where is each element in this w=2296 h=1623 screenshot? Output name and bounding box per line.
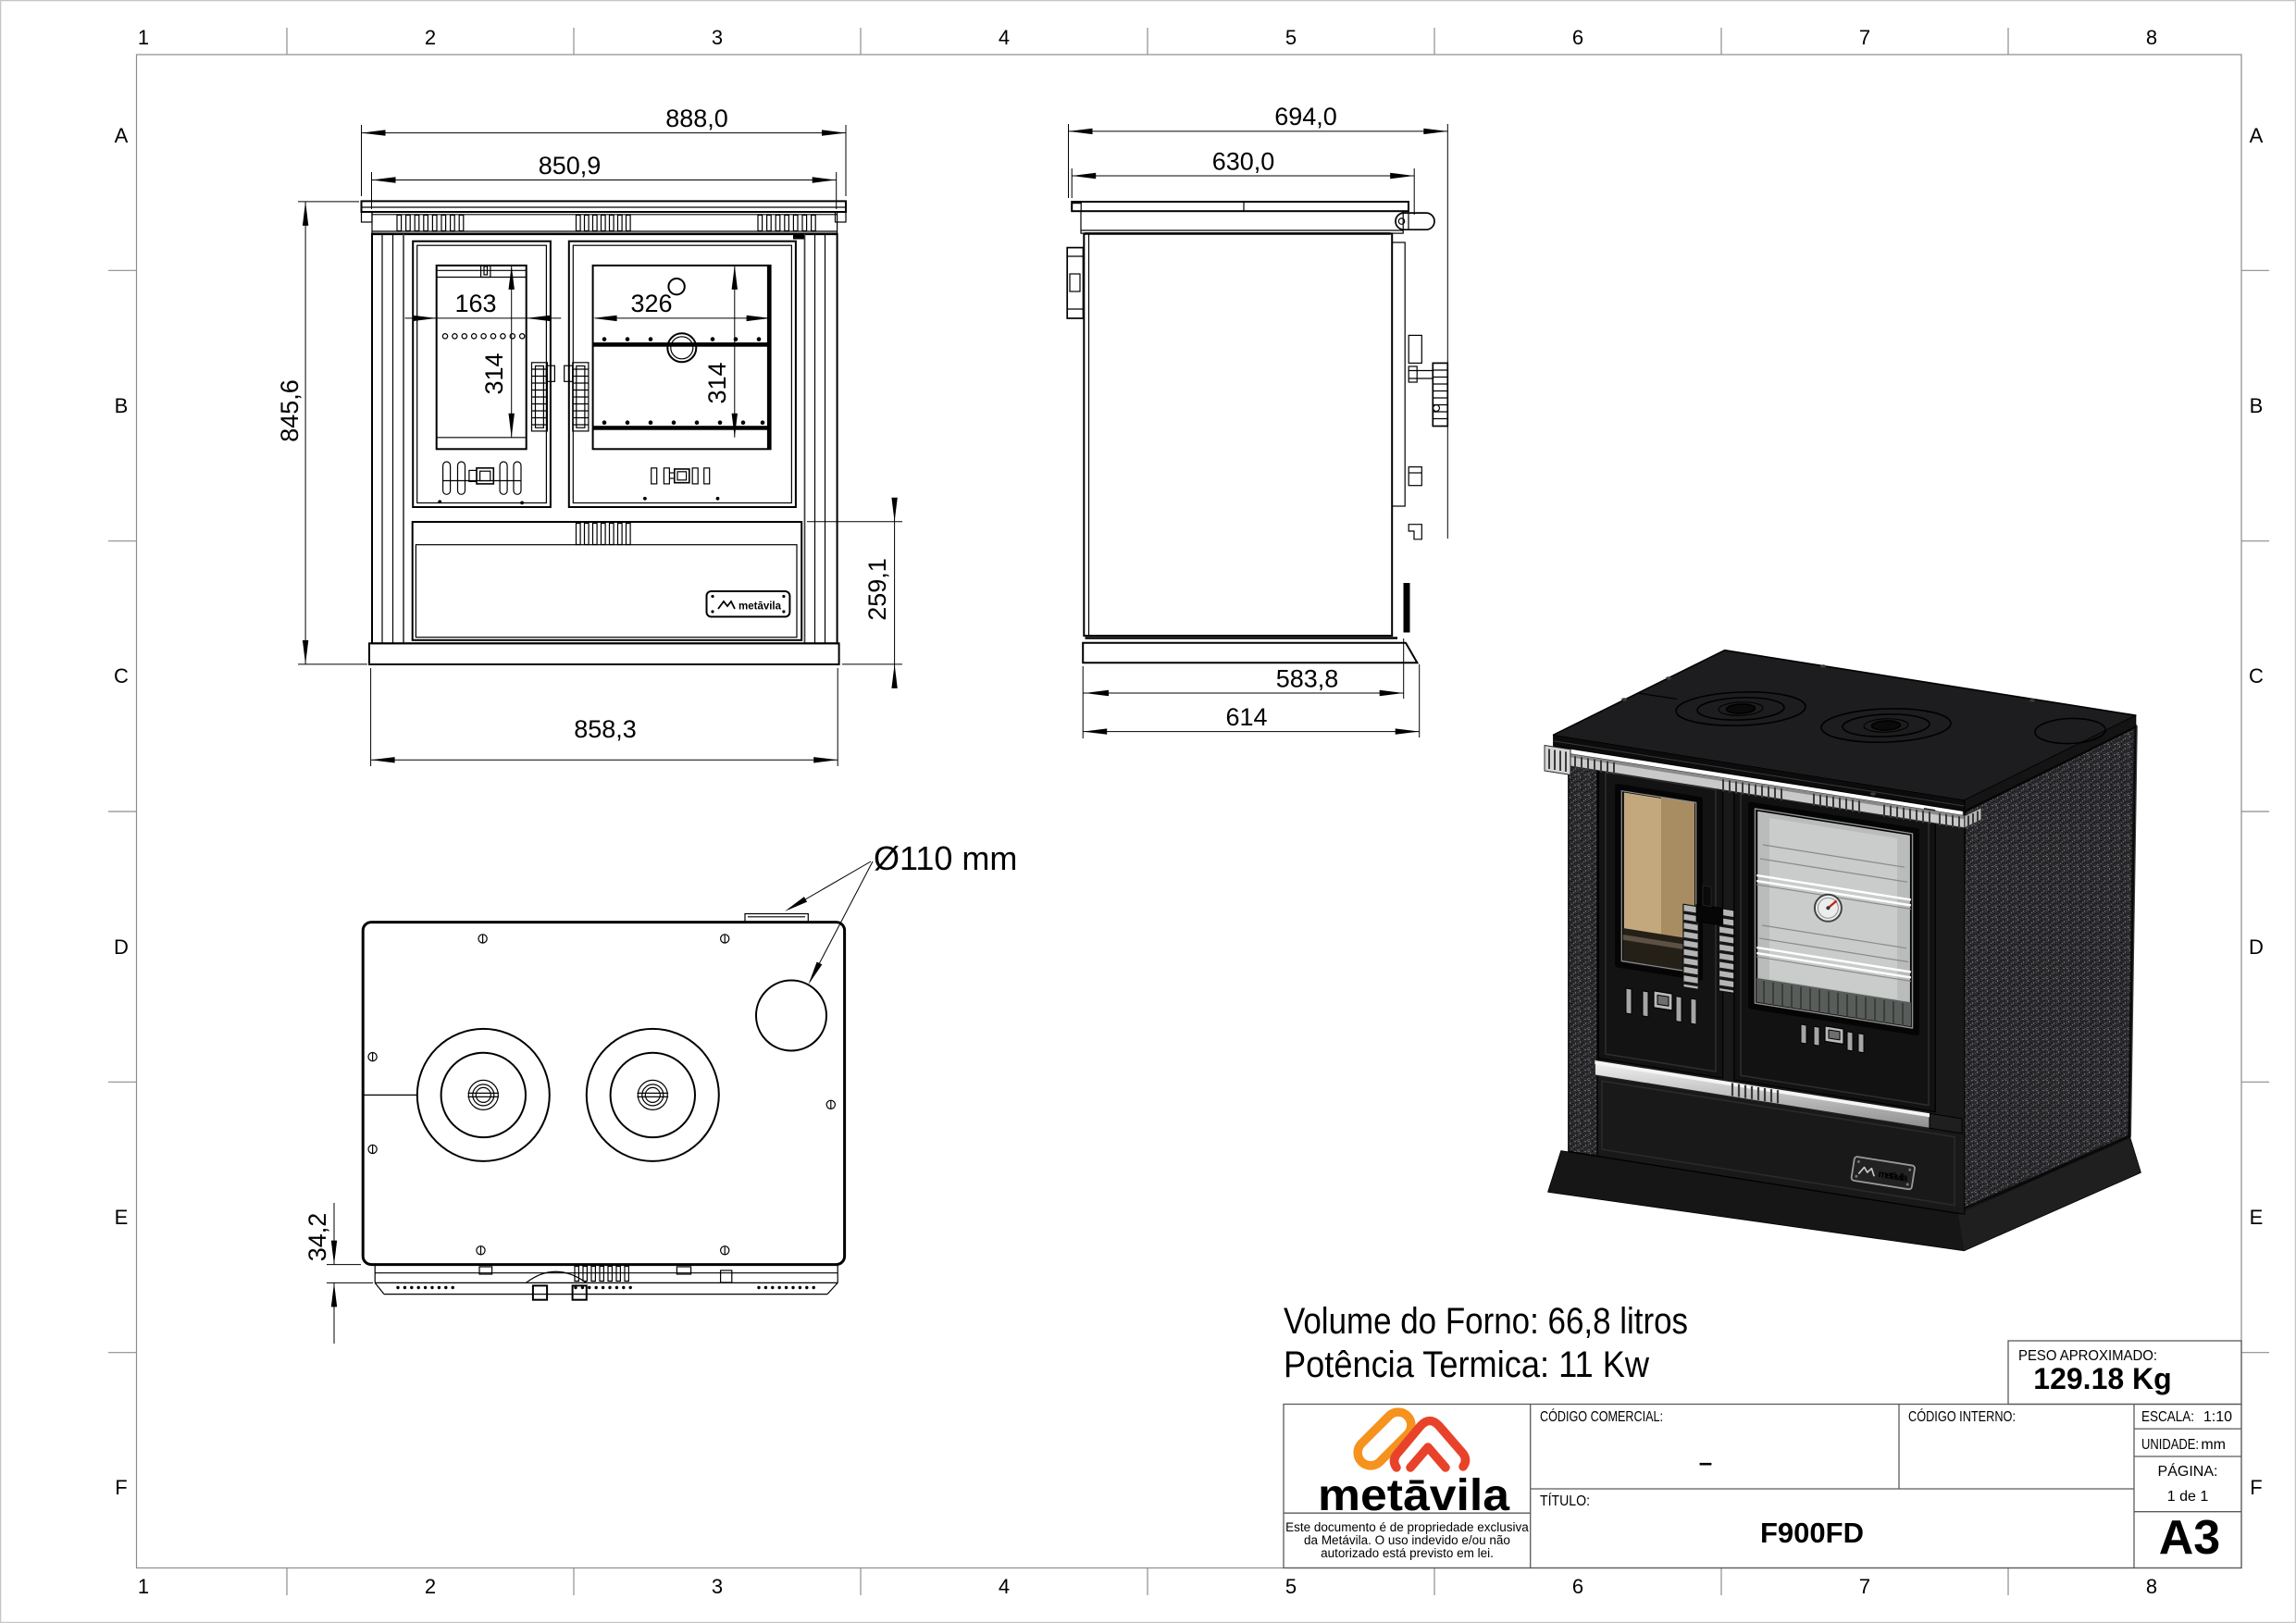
svg-text:6: 6 <box>1572 26 1583 49</box>
svg-text:Potência Termica: 11 Kw: Potência Termica: 11 Kw <box>1284 1344 1649 1385</box>
svg-text:C: C <box>114 664 129 688</box>
svg-text:1:10: 1:10 <box>2203 1409 2232 1425</box>
svg-text:1: 1 <box>138 1575 149 1598</box>
svg-text:B: B <box>115 394 129 417</box>
svg-text:E: E <box>2250 1206 2264 1229</box>
svg-text:694,0: 694,0 <box>1274 103 1337 130</box>
svg-text:A: A <box>2250 124 2264 147</box>
svg-text:UNIDADE:: UNIDADE: <box>2141 1437 2199 1453</box>
svg-text:7: 7 <box>1859 26 1870 49</box>
svg-text:A: A <box>115 124 129 147</box>
svg-text:8: 8 <box>2146 1575 2157 1598</box>
svg-text:B: B <box>2250 394 2264 417</box>
svg-text:Volume do Forno: 66,8 litros: Volume do Forno: 66,8 litros <box>1284 1301 1688 1342</box>
svg-text:34,2: 34,2 <box>304 1213 331 1262</box>
svg-text:7: 7 <box>1859 1575 1870 1598</box>
svg-text:4: 4 <box>999 1575 1010 1598</box>
svg-text:2: 2 <box>425 26 436 49</box>
svg-text:314: 314 <box>480 353 508 394</box>
svg-text:259,1: 259,1 <box>863 558 891 621</box>
svg-text:2: 2 <box>425 1575 436 1598</box>
svg-text:326: 326 <box>630 290 672 317</box>
svg-text:C: C <box>2249 664 2264 688</box>
svg-text:mm: mm <box>2201 1437 2226 1453</box>
svg-text:1: 1 <box>138 26 149 49</box>
svg-text:583,8: 583,8 <box>1276 665 1339 693</box>
svg-text:–: – <box>1699 1448 1712 1476</box>
svg-text:PÁGINA:: PÁGINA: <box>2158 1462 2218 1480</box>
svg-text:888,0: 888,0 <box>665 105 728 132</box>
svg-text:Ø110 mm: Ø110 mm <box>874 839 1017 877</box>
svg-text:da Metávila. O uso indevido e/: da Metávila. O uso indevido e/ou não <box>1304 1533 1510 1547</box>
svg-text:314: 314 <box>703 362 731 403</box>
svg-text:8: 8 <box>2146 26 2157 49</box>
svg-text:Este documento é de propriedad: Este documento é de propriedade exclusiv… <box>1285 1520 1529 1534</box>
svg-text:6: 6 <box>1572 1575 1583 1598</box>
svg-text:5: 5 <box>1285 26 1297 49</box>
svg-text:D: D <box>114 935 129 959</box>
svg-text:F900FD: F900FD <box>1760 1517 1864 1549</box>
svg-text:autorizado está previsto em le: autorizado está previsto em lei. <box>1321 1546 1494 1560</box>
svg-text:858,3: 858,3 <box>574 715 637 743</box>
svg-text:metāvila: metāvila <box>1318 1471 1509 1520</box>
svg-text:1 de 1: 1 de 1 <box>2167 1489 2209 1505</box>
svg-text:3: 3 <box>712 1575 723 1598</box>
svg-text:850,9: 850,9 <box>539 152 602 180</box>
svg-text:F: F <box>2250 1476 2262 1499</box>
svg-text:F: F <box>115 1476 127 1499</box>
svg-text:TÍTULO:: TÍTULO: <box>1540 1492 1590 1509</box>
svg-text:D: D <box>2249 935 2264 959</box>
svg-text:CÓDIGO COMERCIAL:: CÓDIGO COMERCIAL: <box>1540 1407 1663 1425</box>
svg-text:845,6: 845,6 <box>276 379 304 442</box>
svg-text:4: 4 <box>999 26 1010 49</box>
svg-text:A3: A3 <box>2159 1511 2220 1565</box>
svg-text:E: E <box>115 1206 129 1229</box>
svg-text:3: 3 <box>712 26 723 49</box>
svg-text:129.18 Kg: 129.18 Kg <box>2033 1362 2171 1395</box>
svg-text:ESCALA:: ESCALA: <box>2141 1409 2194 1425</box>
svg-text:5: 5 <box>1285 1575 1297 1598</box>
svg-text:630,0: 630,0 <box>1212 148 1275 176</box>
svg-text:CÓDIGO INTERNO:: CÓDIGO INTERNO: <box>1908 1407 2016 1425</box>
svg-text:metāvila: metāvila <box>738 601 782 613</box>
svg-text:163: 163 <box>454 290 496 317</box>
svg-text:614: 614 <box>1225 703 1267 731</box>
